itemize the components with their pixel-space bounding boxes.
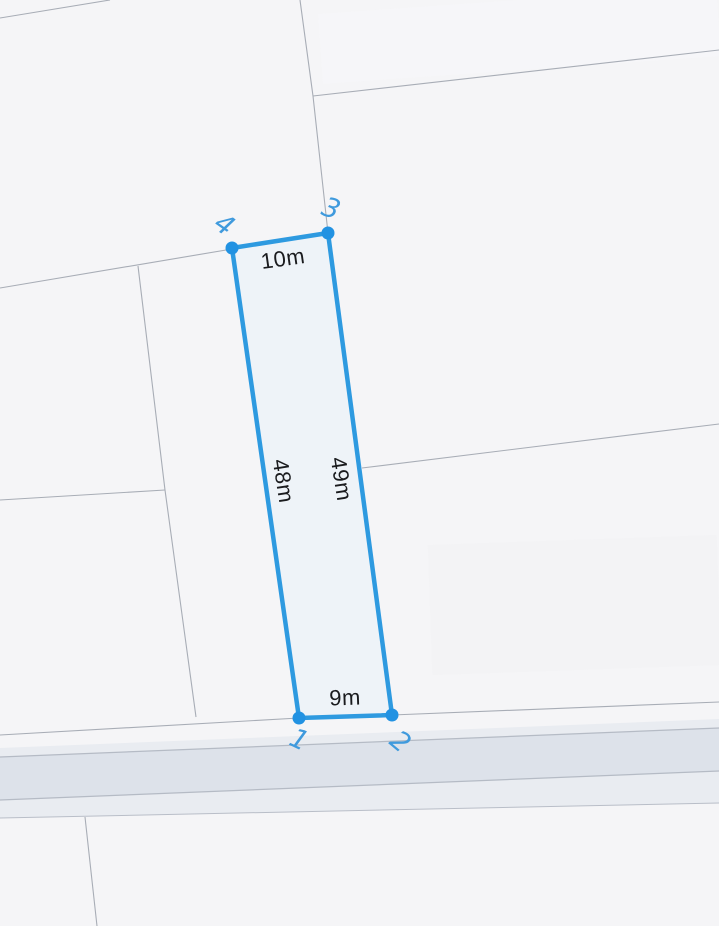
boundary-line xyxy=(0,249,232,288)
map-canvas[interactable]: 10m 48m 49m 9m 1 2 3 4 xyxy=(0,0,719,926)
parcel-polygon[interactable] xyxy=(232,233,392,718)
parcel-vertex-handle-3[interactable] xyxy=(322,227,335,240)
boundary-line xyxy=(362,424,719,468)
parcel-vertex-handle-4[interactable] xyxy=(226,242,239,255)
boundary-line xyxy=(0,718,299,735)
boundary-line xyxy=(0,0,110,18)
boundary-line xyxy=(0,490,165,500)
boundary-line xyxy=(313,50,719,96)
map-layers xyxy=(0,0,719,926)
boundary-line xyxy=(85,817,97,926)
boundary-line xyxy=(300,0,328,233)
boundary-line xyxy=(392,702,719,715)
parcel-layer xyxy=(226,227,399,725)
dimension-label-bottom: 9m xyxy=(329,684,361,711)
parcel-vertex-handle-2[interactable] xyxy=(386,709,399,722)
road-layer xyxy=(0,719,719,818)
